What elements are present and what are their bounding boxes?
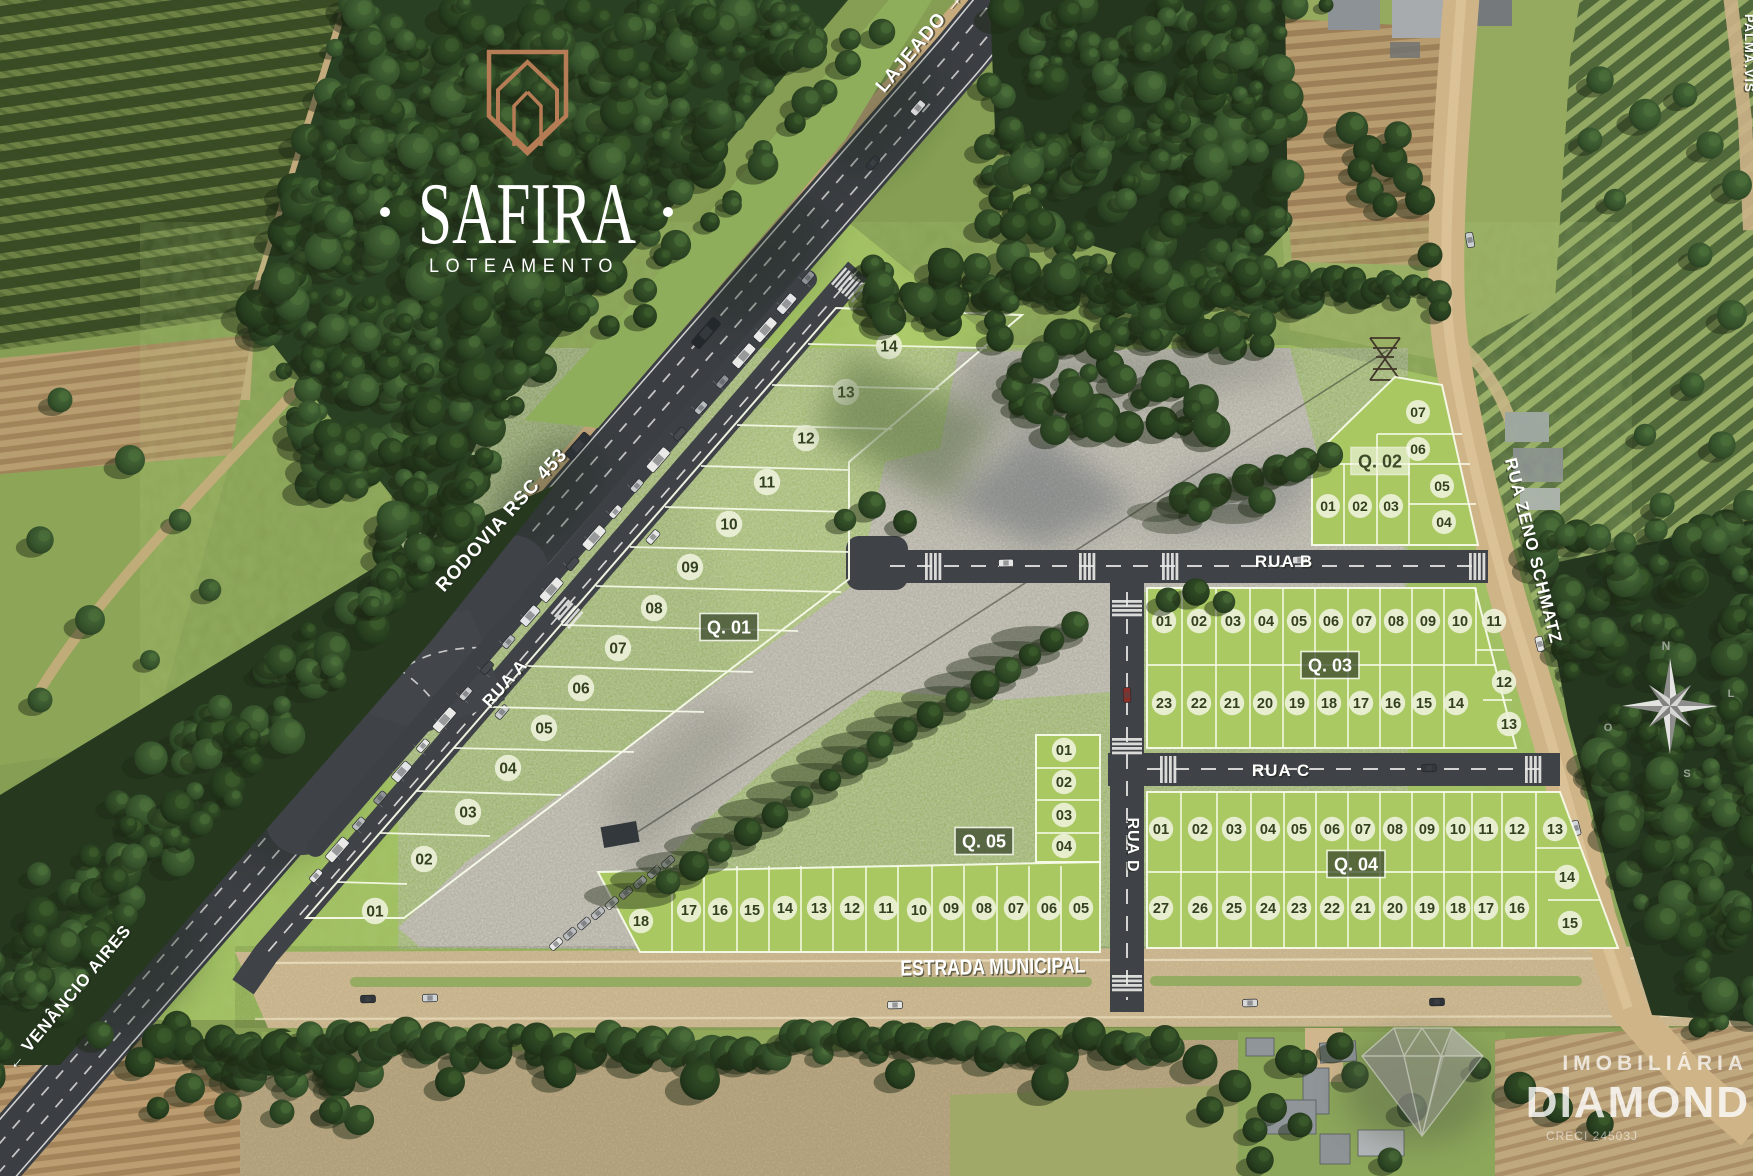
svg-text:07: 07: [1008, 901, 1024, 917]
svg-text:04: 04: [1260, 822, 1276, 838]
svg-text:L: L: [1728, 688, 1735, 700]
svg-text:09: 09: [681, 560, 699, 577]
svg-text:17: 17: [681, 903, 697, 919]
svg-text:Q. 01: Q. 01: [707, 617, 751, 637]
svg-text:08: 08: [976, 901, 992, 917]
svg-text:20: 20: [1257, 696, 1273, 712]
svg-text:11: 11: [878, 901, 893, 917]
svg-text:02: 02: [1191, 614, 1207, 630]
svg-text:12: 12: [1509, 822, 1525, 838]
svg-text:09: 09: [1420, 614, 1436, 630]
svg-text:05: 05: [1291, 822, 1307, 838]
svg-text:10: 10: [911, 903, 927, 919]
svg-text:14: 14: [1448, 696, 1464, 712]
svg-text:27: 27: [1153, 901, 1169, 917]
svg-text:Q. 05: Q. 05: [962, 831, 1006, 851]
svg-text:06: 06: [1410, 441, 1426, 457]
svg-text:04: 04: [1056, 839, 1072, 855]
svg-text:14: 14: [1559, 870, 1575, 886]
svg-text:18: 18: [633, 914, 649, 930]
svg-text:20: 20: [1387, 901, 1403, 917]
svg-text:24: 24: [1260, 901, 1276, 917]
svg-text:08: 08: [1387, 822, 1403, 838]
svg-text:09: 09: [1419, 822, 1435, 838]
svg-text:23: 23: [1291, 901, 1307, 917]
svg-text:N: N: [1662, 639, 1671, 653]
svg-text:22: 22: [1191, 696, 1207, 712]
svg-text:12: 12: [844, 901, 860, 917]
svg-text:03: 03: [1383, 498, 1399, 514]
svg-text:03: 03: [1056, 808, 1072, 824]
svg-text:17: 17: [1478, 901, 1494, 917]
svg-text:04: 04: [499, 761, 517, 778]
svg-text:01: 01: [1153, 822, 1169, 838]
svg-text:01: 01: [1156, 614, 1172, 630]
svg-text:05: 05: [1434, 478, 1450, 494]
svg-text:IMOBILIÁRIA: IMOBILIÁRIA: [1562, 1052, 1748, 1075]
svg-text:15: 15: [1562, 916, 1578, 932]
svg-text:05: 05: [1291, 614, 1307, 630]
svg-text:ESTRADA MUNICIPAL: ESTRADA MUNICIPAL: [900, 952, 1085, 980]
svg-text:RUA B: RUA B: [1255, 552, 1313, 571]
svg-text:06: 06: [1324, 822, 1340, 838]
svg-text:14: 14: [880, 339, 898, 356]
svg-text:16: 16: [1509, 901, 1525, 917]
svg-text:05: 05: [1073, 901, 1089, 917]
svg-text:16: 16: [712, 903, 728, 919]
svg-text:06: 06: [1323, 614, 1339, 630]
svg-text:16: 16: [1385, 696, 1401, 712]
svg-text:S: S: [1683, 768, 1690, 780]
svg-text:07: 07: [1355, 822, 1371, 838]
svg-text:25: 25: [1226, 901, 1242, 917]
svg-text:SAFIRA: SAFIRA: [418, 166, 636, 263]
svg-text:09: 09: [943, 901, 959, 917]
svg-text:02: 02: [1352, 498, 1368, 514]
svg-text:13: 13: [811, 901, 827, 917]
svg-text:02: 02: [1192, 822, 1208, 838]
svg-text:23: 23: [1156, 696, 1172, 712]
svg-text:14: 14: [777, 901, 793, 917]
svg-text:O: O: [1604, 722, 1613, 734]
svg-text:04: 04: [1436, 514, 1452, 530]
svg-text:12: 12: [797, 431, 814, 448]
svg-text:01: 01: [1320, 498, 1336, 514]
svg-text:15: 15: [744, 903, 760, 919]
svg-text:06: 06: [1041, 901, 1057, 917]
svg-text:21: 21: [1355, 901, 1371, 917]
svg-text:10: 10: [720, 517, 737, 534]
svg-text:18: 18: [1450, 901, 1466, 917]
svg-text:Q. 02: Q. 02: [1358, 451, 1402, 471]
svg-text:10: 10: [1452, 614, 1468, 630]
svg-text:11: 11: [759, 475, 776, 492]
svg-text:04: 04: [1258, 614, 1274, 630]
svg-text:19: 19: [1289, 696, 1305, 712]
svg-text:07: 07: [609, 641, 626, 658]
svg-text:03: 03: [1225, 614, 1241, 630]
svg-text:LOTEAMENTO: LOTEAMENTO: [429, 256, 619, 277]
svg-text:Q. 04: Q. 04: [1334, 854, 1378, 874]
svg-text:07: 07: [1356, 614, 1372, 630]
svg-text:21: 21: [1224, 696, 1240, 712]
svg-text:Q. 03: Q. 03: [1308, 655, 1352, 675]
svg-text:12: 12: [1496, 675, 1512, 691]
svg-text:15: 15: [1416, 696, 1432, 712]
svg-text:13: 13: [1547, 822, 1563, 838]
svg-text:19: 19: [1419, 901, 1435, 917]
svg-text:03: 03: [1226, 822, 1242, 838]
svg-text:05: 05: [535, 721, 553, 738]
svg-text:17: 17: [1353, 696, 1369, 712]
svg-text:07: 07: [1410, 404, 1426, 420]
svg-text:06: 06: [572, 681, 590, 698]
svg-text:11: 11: [1478, 822, 1493, 838]
svg-text:26: 26: [1192, 901, 1208, 917]
svg-text:01: 01: [1056, 743, 1072, 759]
svg-text:PALMA.VIS: PALMA.VIS: [1742, 14, 1753, 93]
svg-text:CRECI 24503J: CRECI 24503J: [1546, 1129, 1638, 1143]
svg-text:02: 02: [415, 852, 432, 869]
svg-text:RUA D: RUA D: [1124, 817, 1141, 872]
svg-text:RUA C: RUA C: [1252, 761, 1310, 780]
svg-text:10: 10: [1450, 822, 1466, 838]
svg-text:02: 02: [1056, 775, 1072, 791]
svg-text:01: 01: [366, 904, 384, 921]
svg-text:13: 13: [1501, 717, 1517, 733]
svg-text:18: 18: [1321, 696, 1337, 712]
svg-text:11: 11: [1486, 614, 1501, 630]
svg-text:03: 03: [459, 805, 477, 822]
svg-text:22: 22: [1324, 901, 1340, 917]
svg-text:08: 08: [1388, 614, 1404, 630]
svg-text:DIAMOND: DIAMOND: [1526, 1078, 1750, 1127]
svg-text:08: 08: [645, 601, 663, 618]
